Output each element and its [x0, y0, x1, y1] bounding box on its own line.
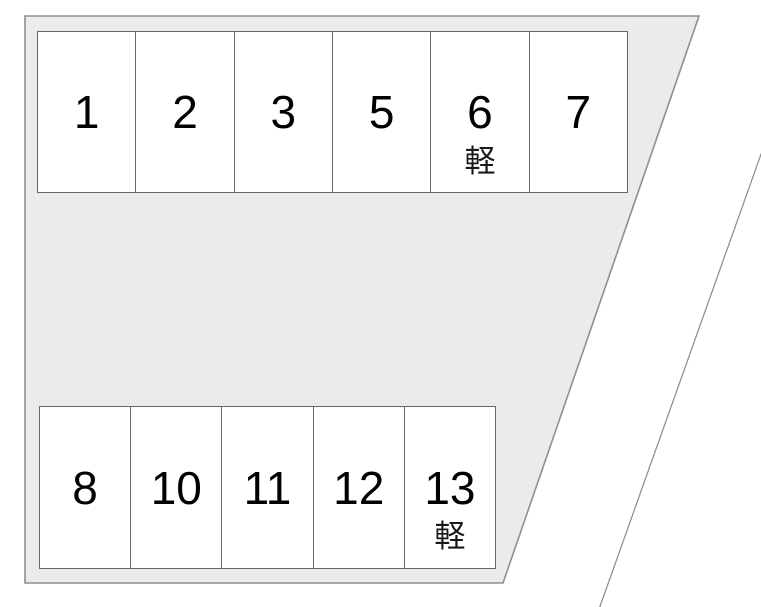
parking-space-5: 5: [332, 31, 431, 193]
kei-label: 軽: [405, 521, 495, 552]
space-number: 2: [172, 89, 198, 135]
space-number: 3: [271, 89, 297, 135]
parking-row-bottom: 8 10 11 12 13 軽: [39, 406, 496, 569]
parking-row-top: 1 2 3 5 6 軽 7: [37, 31, 628, 193]
parking-space-13: 13 軽: [404, 406, 496, 569]
space-number: 6: [467, 89, 493, 135]
space-number: 10: [151, 465, 202, 511]
parking-space-8: 8: [39, 406, 131, 569]
parking-space-7: 7: [529, 31, 628, 193]
space-number: 5: [369, 89, 395, 135]
parking-lot-map: 1 2 3 5 6 軽 7 8 10 11 12 13: [0, 0, 761, 607]
parking-space-3: 3: [234, 31, 333, 193]
kei-label: 軽: [431, 146, 528, 177]
parking-space-2: 2: [135, 31, 234, 193]
parking-space-11: 11: [221, 406, 313, 569]
space-number: 11: [244, 465, 292, 511]
parking-space-6: 6 軽: [430, 31, 529, 193]
space-number: 13: [424, 465, 475, 511]
space-number: 8: [72, 465, 98, 511]
parking-space-1: 1: [37, 31, 136, 193]
parking-space-12: 12: [313, 406, 405, 569]
space-number: 7: [566, 89, 592, 135]
space-number: 12: [333, 465, 384, 511]
space-number: 1: [74, 89, 100, 135]
parking-space-10: 10: [130, 406, 222, 569]
